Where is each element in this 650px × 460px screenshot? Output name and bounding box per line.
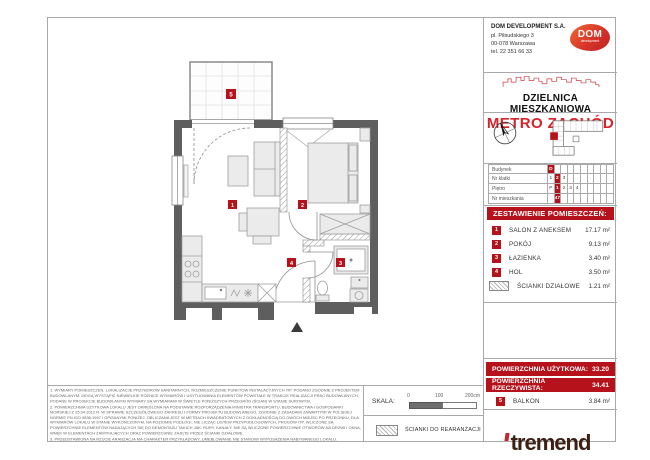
company-address-2: 00-078 Warszawa — [491, 41, 535, 47]
unit-table-row: PiętroP1234 — [488, 184, 614, 194]
scale-bar-filled — [409, 402, 444, 409]
unit-table-cell — [581, 164, 588, 174]
disclaimer-notes-inner: 1. WYMIARY POMIESZCZEŃ, LOKALIZACJE PRZY… — [50, 389, 362, 441]
company-block: DOM DEVELOPMENT S.A. pl. Piłsudskiego 3 … — [484, 17, 617, 72]
unit-table-cell — [601, 184, 608, 194]
rearrangement-label: ŚCIANKI DO REARANŻACJI — [405, 427, 481, 433]
unit-table-cell — [548, 194, 555, 204]
unit-table-cell: 3 — [568, 184, 575, 194]
tremend-logo-mark-icon — [504, 433, 509, 441]
marker-pokoj: 2 — [301, 203, 304, 209]
unit-table-row: Nr mieszkania47 — [488, 194, 614, 204]
room-area: 3.50 m² — [589, 269, 610, 276]
unit-table-cell: 4 — [574, 184, 581, 194]
room-name: ŁAZIENKA — [509, 255, 541, 262]
unit-table-cell: 1 — [555, 184, 562, 194]
unit-table-cell — [555, 164, 562, 174]
company-address-1: pl. Piłsudskiego 3 — [491, 33, 534, 39]
unit-table-cell — [594, 184, 601, 194]
unit-table-cell — [601, 174, 608, 184]
rearrangement-hatch-swatch — [376, 425, 398, 436]
unit-table-cell — [607, 184, 614, 194]
drawing-sheet: 1 2 3 4 5 DOM DEVELOPMENT S.A. pl. Piłsu… — [0, 0, 650, 460]
unit-table: BudynekDNr klatki123PiętroP1234Nr mieszk… — [488, 164, 614, 204]
unit-table-cell — [581, 174, 588, 184]
unit-table-cell — [601, 194, 608, 204]
unit-table-cell — [594, 194, 601, 204]
room-name: SALON Z ANEKSEM — [509, 227, 571, 234]
apartment-location-marker — [550, 132, 558, 140]
balcony-name: BALKON — [513, 398, 540, 405]
room-number-badge: 1 — [492, 226, 501, 235]
room-schedule: ZESTAWIENIE POMIESZCZEŃ: 1 SALON Z ANEKS… — [484, 205, 617, 293]
partition-hatch-swatch — [489, 281, 509, 291]
scale-bar-empty — [442, 402, 477, 409]
room-number-badge: 4 — [492, 268, 501, 277]
unit-table-cell — [588, 164, 595, 174]
room-row: 3 ŁAZIENKA 3.40 m² — [488, 251, 613, 265]
disclaimer-notes: 1. WYMIARY POMIESZCZEŃ, LOKALIZACJE PRZY… — [50, 389, 362, 441]
unit-table-cell — [568, 174, 575, 184]
room-schedule-title: ZESTAWIENIE POMIESZCZEŃ: — [487, 207, 614, 220]
tremend-logo-text: tremend — [511, 430, 591, 456]
disclaimer-note: 2. POWIERZCHNIA UŻYTKOWA LOKALU JEST OKR… — [50, 405, 362, 437]
marker-salon: 1 — [231, 203, 234, 209]
unit-table-cell — [594, 164, 601, 174]
unit-table-cell — [574, 164, 581, 174]
unit-table-cell — [588, 174, 595, 184]
site-plan-map — [540, 117, 612, 159]
unit-table-row-label: Nr mieszkania — [488, 194, 548, 204]
unit-table-cell: D — [548, 164, 555, 174]
partition-row: ŚCIANKI DZIAŁOWE 1.21 m² — [488, 279, 613, 293]
compass-icon — [492, 120, 518, 146]
title-block-panel: DOM DEVELOPMENT S.A. pl. Piłsudskiego 3 … — [483, 17, 617, 442]
unit-table-cell — [588, 184, 595, 194]
room-area: 17.17 m² — [585, 227, 610, 234]
unit-table-cell — [568, 164, 575, 174]
scale-tick-200: 200cm — [465, 393, 480, 399]
dom-development-logo: DOM development — [570, 24, 610, 51]
partition-area: 1.21 m² — [589, 283, 610, 290]
room-number-badge: 2 — [492, 240, 501, 249]
room-row: 4 HOL 3.50 m² — [488, 265, 613, 279]
entrance-arrow-icon — [291, 322, 303, 332]
unit-table-cell: 1 — [548, 174, 555, 184]
unit-table-cell — [581, 184, 588, 194]
room-row: 2 POKÓJ 9.13 m² — [488, 237, 613, 251]
project-brand-block: DZIELNICA MIESZKANIOWA METRO ZACHÓD — [484, 72, 617, 112]
unit-table-row: Nr klatki123 — [488, 174, 614, 184]
tremend-logo: tremend — [484, 426, 617, 459]
orientation-block — [484, 112, 617, 163]
company-name: DOM DEVELOPMENT S.A. — [491, 24, 566, 30]
unit-table-cell — [607, 174, 614, 184]
disclaimer-note: 3. PRZEDSTAWIONA NA RZUCIE ARANŻACJA MA … — [50, 438, 362, 441]
room-name: POKÓJ — [509, 241, 531, 248]
unit-table-row: BudynekD — [488, 164, 614, 174]
unit-table-cell — [607, 164, 614, 174]
scale-box: SKALA: 0 100 200cm — [363, 385, 483, 415]
unit-table-cell — [601, 164, 608, 174]
unit-table-cell — [561, 164, 568, 174]
unit-table-cell: 47 — [555, 194, 562, 204]
usable-area-label: POWIERZCHNIA UŻYTKOWA: — [492, 366, 588, 373]
balcony-number-badge: 5 — [496, 397, 505, 406]
scale-label: SKALA: — [372, 398, 395, 405]
unit-table-cell: 2 — [555, 174, 562, 184]
rearrangement-legend: ŚCIANKI DO REARANŻACJI — [363, 415, 483, 442]
room-area: 3.40 m² — [589, 255, 610, 262]
unit-table-cell: P — [548, 184, 555, 194]
actual-area-bar: POWIERZCHNIA RZECZYWISTA: 34.41 — [486, 378, 615, 392]
furniture — [182, 128, 370, 302]
room-name: HOL — [509, 269, 523, 276]
unit-table-row-label: Budynek — [488, 164, 548, 174]
unit-table-cell — [588, 194, 595, 204]
usable-area-value: 33.20 — [592, 366, 609, 373]
unit-table-cell — [574, 194, 581, 204]
actual-area-value: 34.41 — [592, 382, 609, 389]
room-area: 9.13 m² — [589, 241, 610, 248]
skyline-icon — [492, 74, 610, 87]
balcony-area: 3.84 m² — [589, 398, 610, 405]
unit-table-cell — [574, 174, 581, 184]
marker-lazienka: 3 — [339, 261, 342, 267]
floor-plan-drawing: 1 2 3 4 5 — [136, 50, 386, 342]
room-row: 1 SALON Z ANEKSEM 17.17 m² — [488, 223, 613, 237]
disclaimer-note: 1. WYMIARY POMIESZCZEŃ, LOKALIZACJE PRZY… — [50, 389, 362, 405]
unit-table-row-label: Piętro — [488, 184, 548, 194]
scale-tick-100: 100 — [435, 393, 443, 399]
partition-name: ŚCIANKI DZIAŁOWE — [517, 283, 580, 290]
balcony-row: 5 BALKON 3.84 m² — [488, 394, 613, 408]
actual-area-label: POWIERZCHNIA RZECZYWISTA: — [492, 378, 592, 392]
room-number-badge: 3 — [492, 254, 501, 263]
unit-table-cell — [607, 194, 614, 204]
logo-subtext: development — [570, 39, 610, 43]
unit-table-cell — [581, 194, 588, 204]
unit-table-cell: 2 — [561, 184, 568, 194]
floor-plan: 1 2 3 4 5 — [136, 50, 386, 342]
unit-table-cell: 3 — [561, 174, 568, 184]
unit-table-cell — [561, 194, 568, 204]
scale-tick-0: 0 — [407, 393, 410, 399]
unit-table-cell — [594, 174, 601, 184]
company-phone: tel. 22 351 66 33 — [491, 49, 532, 55]
unit-table-cell — [568, 194, 575, 204]
usable-area-bar: POWIERZCHNIA UŻYTKOWA: 33.20 — [486, 362, 615, 376]
unit-table-row-label: Nr klatki — [488, 174, 548, 184]
